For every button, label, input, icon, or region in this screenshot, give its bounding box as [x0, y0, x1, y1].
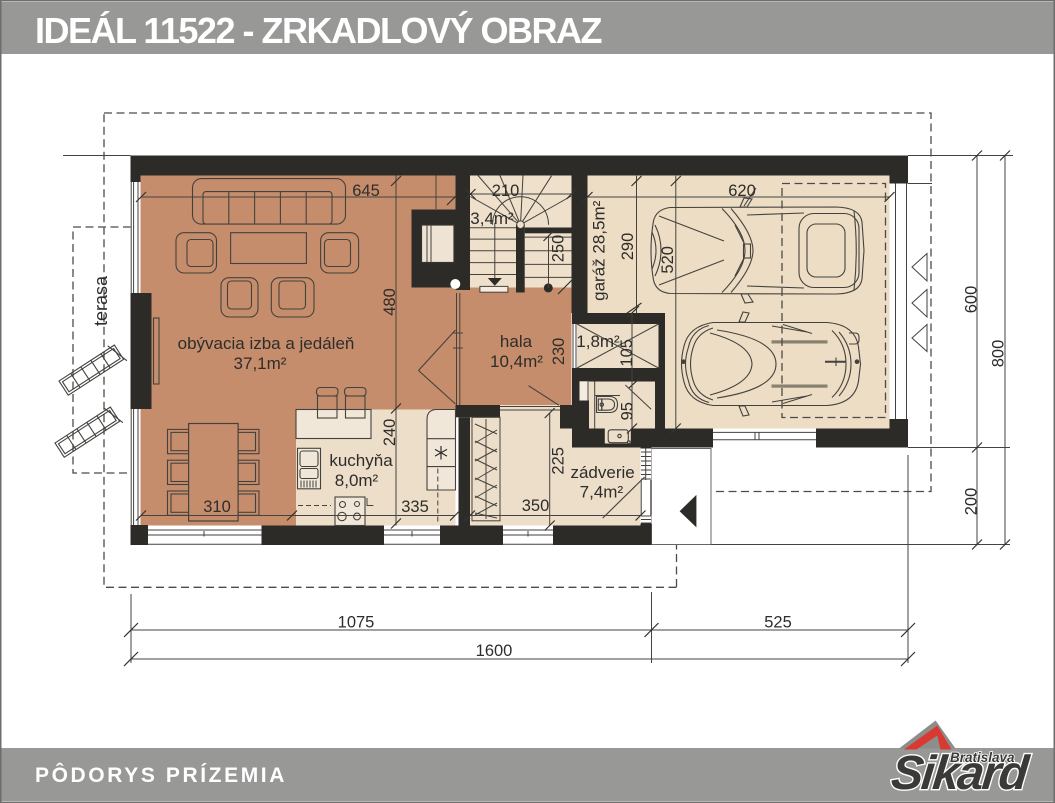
- svg-text:garáž 28,5m²: garáž 28,5m²: [590, 200, 609, 300]
- svg-text:225: 225: [550, 447, 568, 475]
- svg-text:1,8m²: 1,8m²: [576, 332, 620, 351]
- svg-text:250: 250: [550, 235, 568, 263]
- svg-text:520: 520: [659, 246, 677, 274]
- svg-text:95: 95: [619, 402, 637, 420]
- svg-text:Bratislava: Bratislava: [950, 750, 1015, 765]
- svg-text:10,4m²: 10,4m²: [490, 352, 543, 371]
- svg-text:3,4m²: 3,4m²: [470, 209, 514, 228]
- svg-text:200: 200: [963, 488, 981, 516]
- svg-text:7,4m²: 7,4m²: [580, 483, 624, 502]
- svg-text:230: 230: [550, 338, 568, 366]
- svg-text:hala: hala: [500, 332, 533, 351]
- svg-text:zádverie: zádverie: [570, 463, 634, 482]
- svg-text:800: 800: [990, 340, 1008, 368]
- svg-text:8,0m²: 8,0m²: [335, 471, 379, 490]
- svg-text:1600: 1600: [476, 642, 513, 660]
- svg-text:620: 620: [728, 182, 756, 200]
- svg-text:645: 645: [352, 182, 380, 200]
- svg-text:IDEÁL 11522 - ZRKADLOVÝ OBRAZ: IDEÁL 11522 - ZRKADLOVÝ OBRAZ: [35, 10, 601, 51]
- svg-text:37,1m²: 37,1m²: [234, 354, 287, 373]
- svg-text:obývacia izba a jedáleň: obývacia izba a jedáleň: [178, 334, 355, 353]
- svg-text:210: 210: [492, 182, 520, 200]
- svg-text:1075: 1075: [338, 614, 375, 632]
- svg-text:525: 525: [764, 614, 792, 632]
- svg-text:335: 335: [401, 498, 429, 516]
- svg-text:240: 240: [381, 419, 399, 447]
- svg-text:PÔDORYS PRÍZEMIA: PÔDORYS PRÍZEMIA: [35, 763, 287, 787]
- svg-text:terasa: terasa: [91, 275, 111, 326]
- svg-text:310: 310: [203, 498, 231, 516]
- svg-text:600: 600: [963, 286, 981, 314]
- svg-text:kuchyňa: kuchyňa: [329, 451, 393, 470]
- svg-text:105: 105: [618, 339, 636, 367]
- svg-text:290: 290: [619, 233, 637, 261]
- svg-text:350: 350: [522, 497, 550, 515]
- svg-text:480: 480: [381, 288, 399, 316]
